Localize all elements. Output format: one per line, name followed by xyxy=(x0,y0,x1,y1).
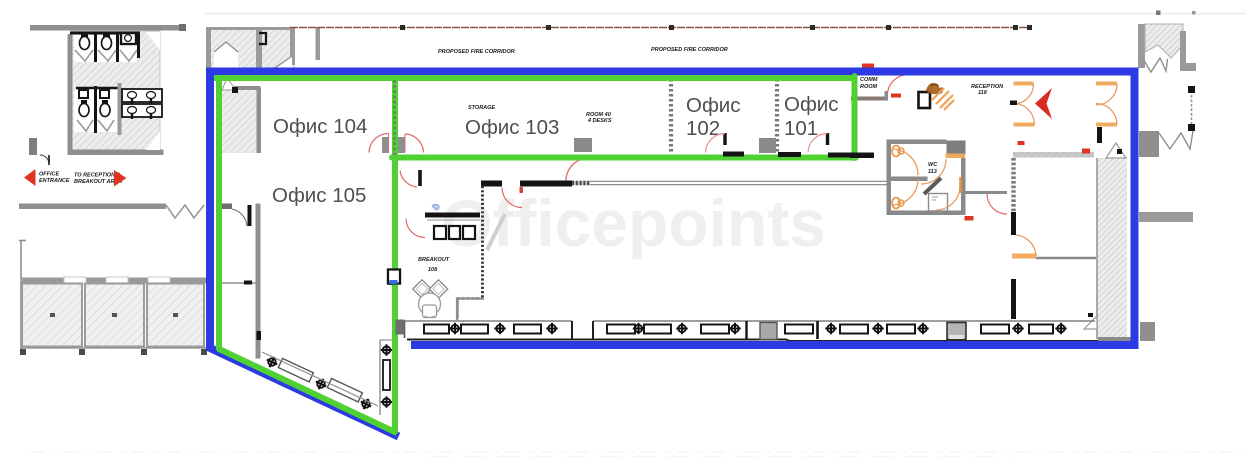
svg-text:COMM: COMM xyxy=(860,77,878,83)
svg-text:RECEPTION: RECEPTION xyxy=(971,84,1004,90)
svg-text:118: 118 xyxy=(978,90,988,96)
svg-text:OFFICE: OFFICE xyxy=(39,172,59,178)
svg-text:Офис 105: Офис 105 xyxy=(272,184,366,207)
svg-text:101: 101 xyxy=(784,117,818,140)
svg-text:TO RECEPTION &: TO RECEPTION & xyxy=(74,173,121,179)
svg-text:113: 113 xyxy=(928,169,937,175)
svg-text:WC: WC xyxy=(928,162,938,168)
svg-text:ROOM: ROOM xyxy=(860,84,878,90)
svg-text:Офис 104: Офис 104 xyxy=(273,115,367,138)
svg-text:Офис 103: Офис 103 xyxy=(465,116,559,139)
svg-text:BREAKOUT: BREAKOUT xyxy=(418,257,450,263)
svg-text:Офис: Офис xyxy=(686,94,741,117)
svg-text:STORAGE: STORAGE xyxy=(468,105,495,111)
svg-text:PROPOSED FIRE CORRIDOR: PROPOSED FIRE CORRIDOR xyxy=(438,49,515,55)
svg-text:4 DESKS: 4 DESKS xyxy=(587,118,612,124)
svg-text:ENTRANCE: ENTRANCE xyxy=(39,178,70,184)
svg-text:Офис: Офис xyxy=(784,93,839,116)
svg-text:PROPOSED FIRE CORRIDOR: PROPOSED FIRE CORRIDOR xyxy=(651,47,728,53)
svg-text:108: 108 xyxy=(428,267,438,273)
